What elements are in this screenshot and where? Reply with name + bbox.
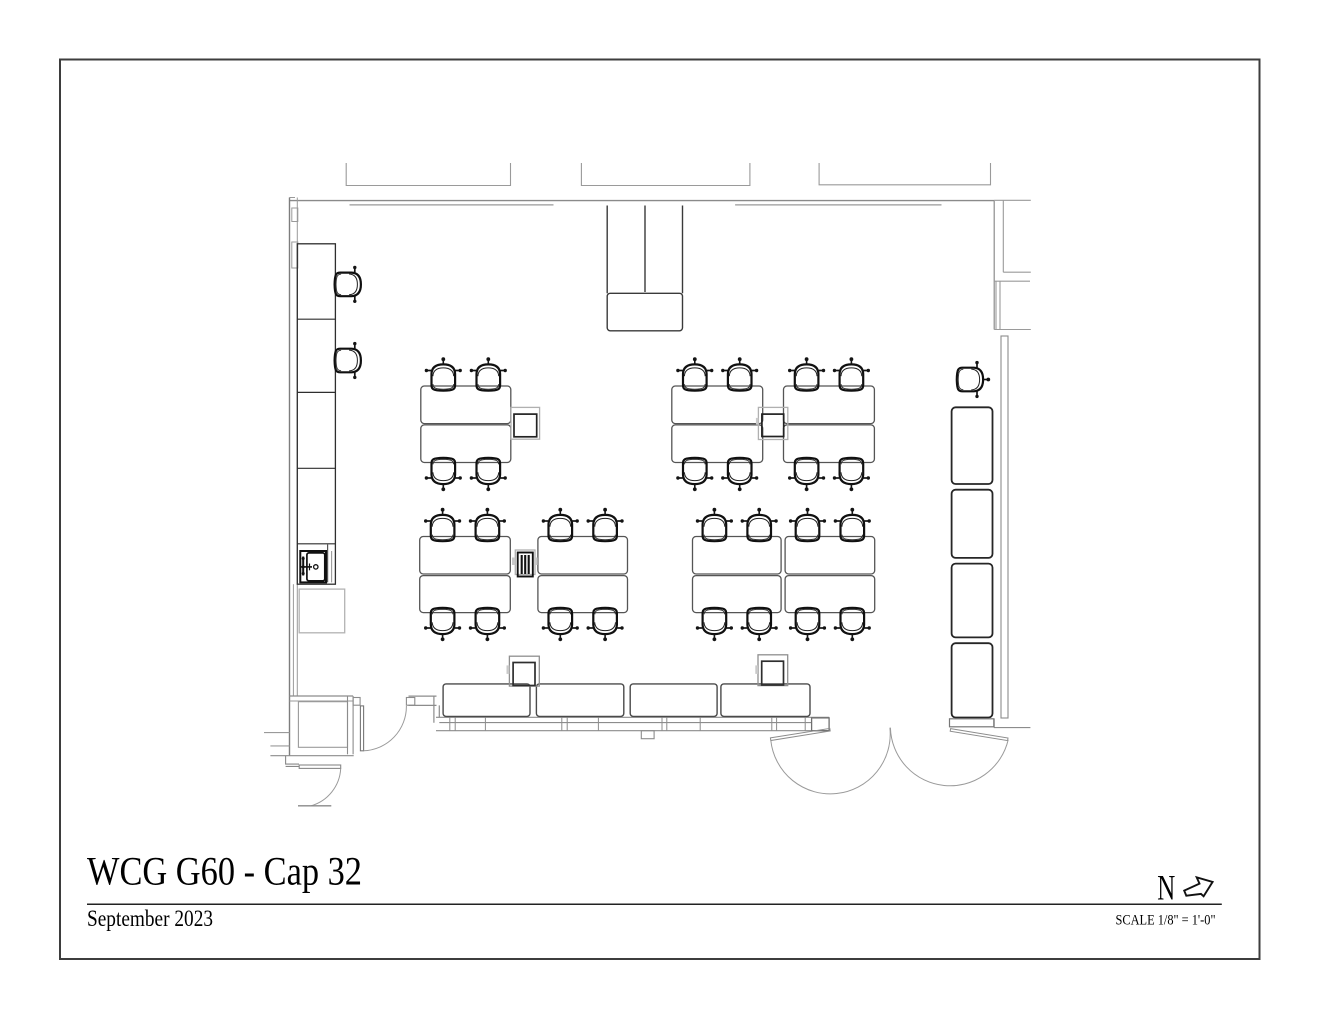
- svg-text:WCG G60 - Cap 32: WCG G60 - Cap 32: [87, 849, 362, 894]
- svg-text:SCALE 1/8" = 1'-0": SCALE 1/8" = 1'-0": [1116, 913, 1216, 929]
- svg-text:N: N: [1157, 868, 1175, 908]
- svg-text:September 2023: September 2023: [87, 906, 213, 931]
